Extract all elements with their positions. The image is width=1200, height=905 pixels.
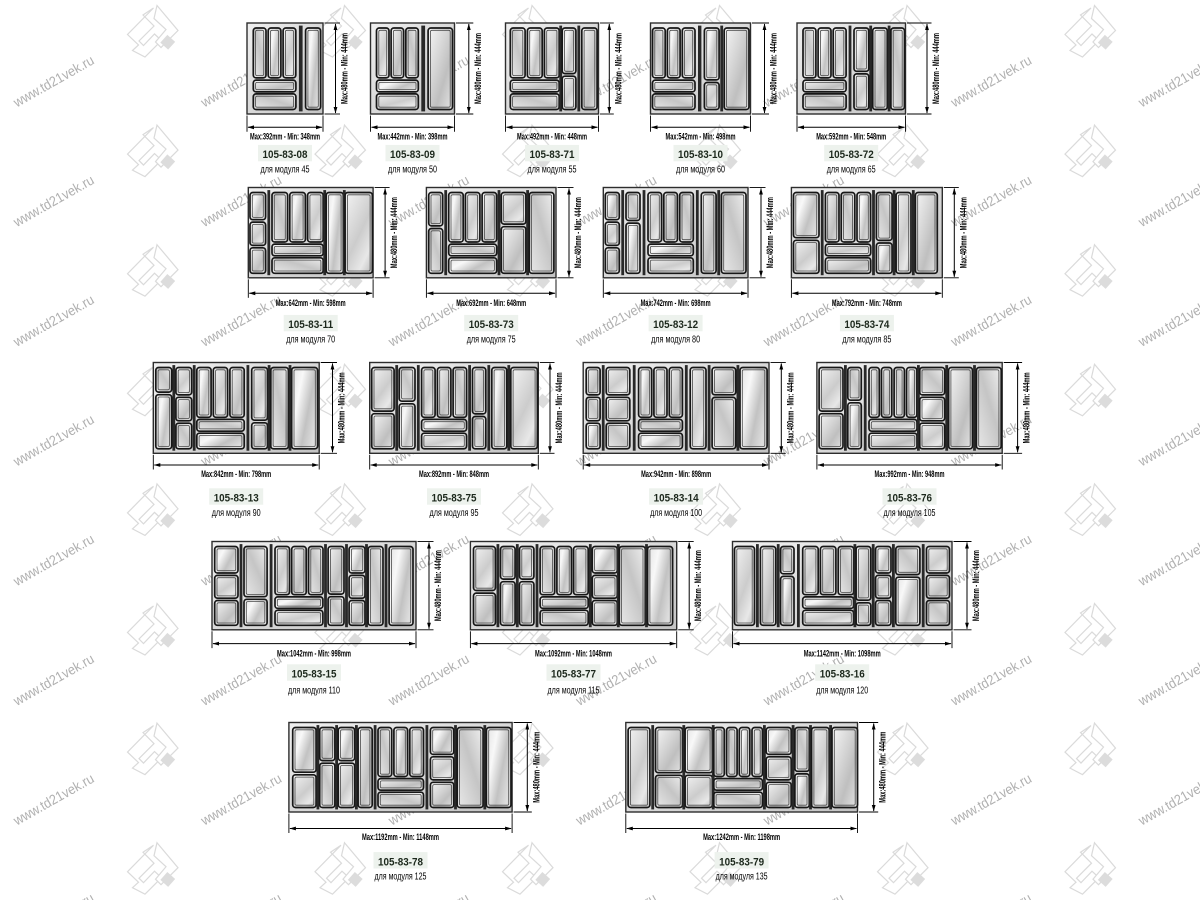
- svg-text:Max:1142mm - Min: 1098mm: Max:1142mm - Min: 1098mm: [804, 648, 881, 658]
- svg-text:для модуля 115: для модуля 115: [548, 686, 600, 697]
- svg-text:105-83-13: 105-83-13: [214, 493, 259, 505]
- svg-text:Max:480mm - Min: 444mm: Max:480mm - Min: 444mm: [931, 33, 941, 104]
- svg-text:105-83-77: 105-83-77: [551, 669, 596, 681]
- svg-text:105-83-72: 105-83-72: [829, 149, 874, 161]
- svg-text:105-83-76: 105-83-76: [887, 493, 932, 505]
- svg-text:Max:480mm - Min: 444mm: Max:480mm - Min: 444mm: [693, 550, 703, 621]
- svg-text:105-83-16: 105-83-16: [820, 669, 865, 681]
- svg-text:для модуля 120: для модуля 120: [816, 686, 868, 697]
- svg-text:Max:480mm - Min: 444mm: Max:480mm - Min: 444mm: [554, 372, 564, 443]
- svg-text:для модуля 55: для модуля 55: [528, 165, 577, 176]
- svg-text:105-83-15: 105-83-15: [292, 669, 337, 681]
- svg-text:105-83-12: 105-83-12: [653, 319, 698, 331]
- svg-text:Max:992mm - Min: 948mm: Max:992mm - Min: 948mm: [875, 469, 945, 479]
- svg-text:для модуля 95: для модуля 95: [430, 508, 479, 519]
- svg-text:Max:480mm - Min: 444mm: Max:480mm - Min: 444mm: [958, 197, 968, 268]
- svg-text:Max:480mm - Min: 444mm: Max:480mm - Min: 444mm: [613, 33, 623, 104]
- svg-text:для модуля 105: для модуля 105: [884, 508, 936, 519]
- svg-text:105-83-79: 105-83-79: [719, 856, 764, 868]
- svg-text:для модуля 45: для модуля 45: [261, 165, 310, 176]
- svg-text:Max:480mm - Min: 444mm: Max:480mm - Min: 444mm: [433, 550, 443, 621]
- svg-text:Max:1092mm - Min: 1048mm: Max:1092mm - Min: 1048mm: [535, 648, 612, 658]
- svg-text:Max:480mm - Min: 444mm: Max:480mm - Min: 444mm: [769, 33, 779, 104]
- svg-text:для модуля 75: для модуля 75: [467, 335, 516, 346]
- svg-text:для модуля 65: для модуля 65: [827, 165, 876, 176]
- svg-text:Max:492mm - Min: 448mm: Max:492mm - Min: 448mm: [517, 132, 587, 142]
- svg-text:Max:480mm - Min: 444mm: Max:480mm - Min: 444mm: [878, 732, 888, 803]
- svg-text:Max:480mm - Min: 444mm: Max:480mm - Min: 444mm: [1022, 372, 1032, 443]
- svg-text:для модуля 80: для модуля 80: [651, 335, 700, 346]
- svg-text:Max:392mm - Min: 348mm: Max:392mm - Min: 348mm: [250, 132, 320, 142]
- svg-text:105-83-71: 105-83-71: [530, 149, 575, 161]
- svg-text:для модуля 100: для модуля 100: [650, 508, 702, 519]
- svg-text:Max:792mm - Min: 748mm: Max:792mm - Min: 748mm: [832, 298, 902, 308]
- svg-text:105-83-10: 105-83-10: [678, 149, 723, 161]
- svg-text:Max:480mm - Min: 444mm: Max:480mm - Min: 444mm: [971, 550, 981, 621]
- svg-text:Max:642mm - Min: 598mm: Max:642mm - Min: 598mm: [276, 298, 346, 308]
- svg-text:Max:480mm - Min: 444mm: Max:480mm - Min: 444mm: [340, 33, 350, 104]
- svg-text:для модуля 70: для модуля 70: [286, 335, 335, 346]
- svg-text:Max:1042mm - Min: 998mm: Max:1042mm - Min: 998mm: [277, 648, 351, 658]
- svg-text:Max:692mm - Min: 648mm: Max:692mm - Min: 648mm: [456, 298, 526, 308]
- svg-text:для модуля 85: для модуля 85: [842, 335, 891, 346]
- svg-text:Max:842mm - Min: 798mm: Max:842mm - Min: 798mm: [201, 469, 271, 479]
- svg-text:для модуля 50: для модуля 50: [388, 165, 437, 176]
- svg-text:для модуля 60: для модуля 60: [676, 165, 725, 176]
- svg-text:105-83-08: 105-83-08: [263, 149, 308, 161]
- svg-text:Max:480mm - Min: 444mm: Max:480mm - Min: 444mm: [765, 197, 775, 268]
- svg-text:105-83-14: 105-83-14: [654, 493, 700, 505]
- svg-text:Max:1192mm - Min: 1148mm: Max:1192mm - Min: 1148mm: [362, 832, 439, 842]
- svg-text:Max:892mm - Min: 848mm: Max:892mm - Min: 848mm: [419, 469, 489, 479]
- svg-text:для модуля 110: для модуля 110: [288, 686, 340, 697]
- svg-text:Max:1242mm - Min: 1198mm: Max:1242mm - Min: 1198mm: [703, 832, 780, 842]
- svg-text:Max:442mm - Min: 398mm: Max:442mm - Min: 398mm: [378, 132, 448, 142]
- svg-text:Max:542mm - Min: 498mm: Max:542mm - Min: 498mm: [666, 132, 736, 142]
- svg-text:Max:480mm - Min: 444mm: Max:480mm - Min: 444mm: [389, 197, 399, 268]
- svg-text:Max:942mm - Min: 898mm: Max:942mm - Min: 898mm: [641, 469, 711, 479]
- svg-text:Max:480mm - Min: 444mm: Max:480mm - Min: 444mm: [531, 732, 541, 803]
- svg-text:Max:742mm - Min: 698mm: Max:742mm - Min: 698mm: [641, 298, 711, 308]
- svg-text:105-83-09: 105-83-09: [390, 149, 435, 161]
- svg-text:для модуля 90: для модуля 90: [212, 508, 261, 519]
- svg-text:105-83-75: 105-83-75: [432, 493, 477, 505]
- svg-text:105-83-78: 105-83-78: [378, 856, 423, 868]
- svg-text:105-83-73: 105-83-73: [469, 319, 514, 331]
- svg-text:Max:480mm - Min: 444mm: Max:480mm - Min: 444mm: [337, 372, 347, 443]
- svg-text:105-83-74: 105-83-74: [844, 319, 890, 331]
- svg-text:Max:480mm - Min: 444mm: Max:480mm - Min: 444mm: [473, 33, 483, 104]
- svg-text:Max:480mm - Min: 444mm: Max:480mm - Min: 444mm: [573, 197, 583, 268]
- svg-text:Max:592mm - Min: 548mm: Max:592mm - Min: 548mm: [816, 132, 886, 142]
- svg-text:105-83-11: 105-83-11: [288, 319, 333, 331]
- svg-text:Max:480mm - Min: 444mm: Max:480mm - Min: 444mm: [785, 372, 795, 443]
- svg-text:для модуля 135: для модуля 135: [716, 871, 768, 882]
- svg-text:для модуля 125: для модуля 125: [375, 871, 427, 882]
